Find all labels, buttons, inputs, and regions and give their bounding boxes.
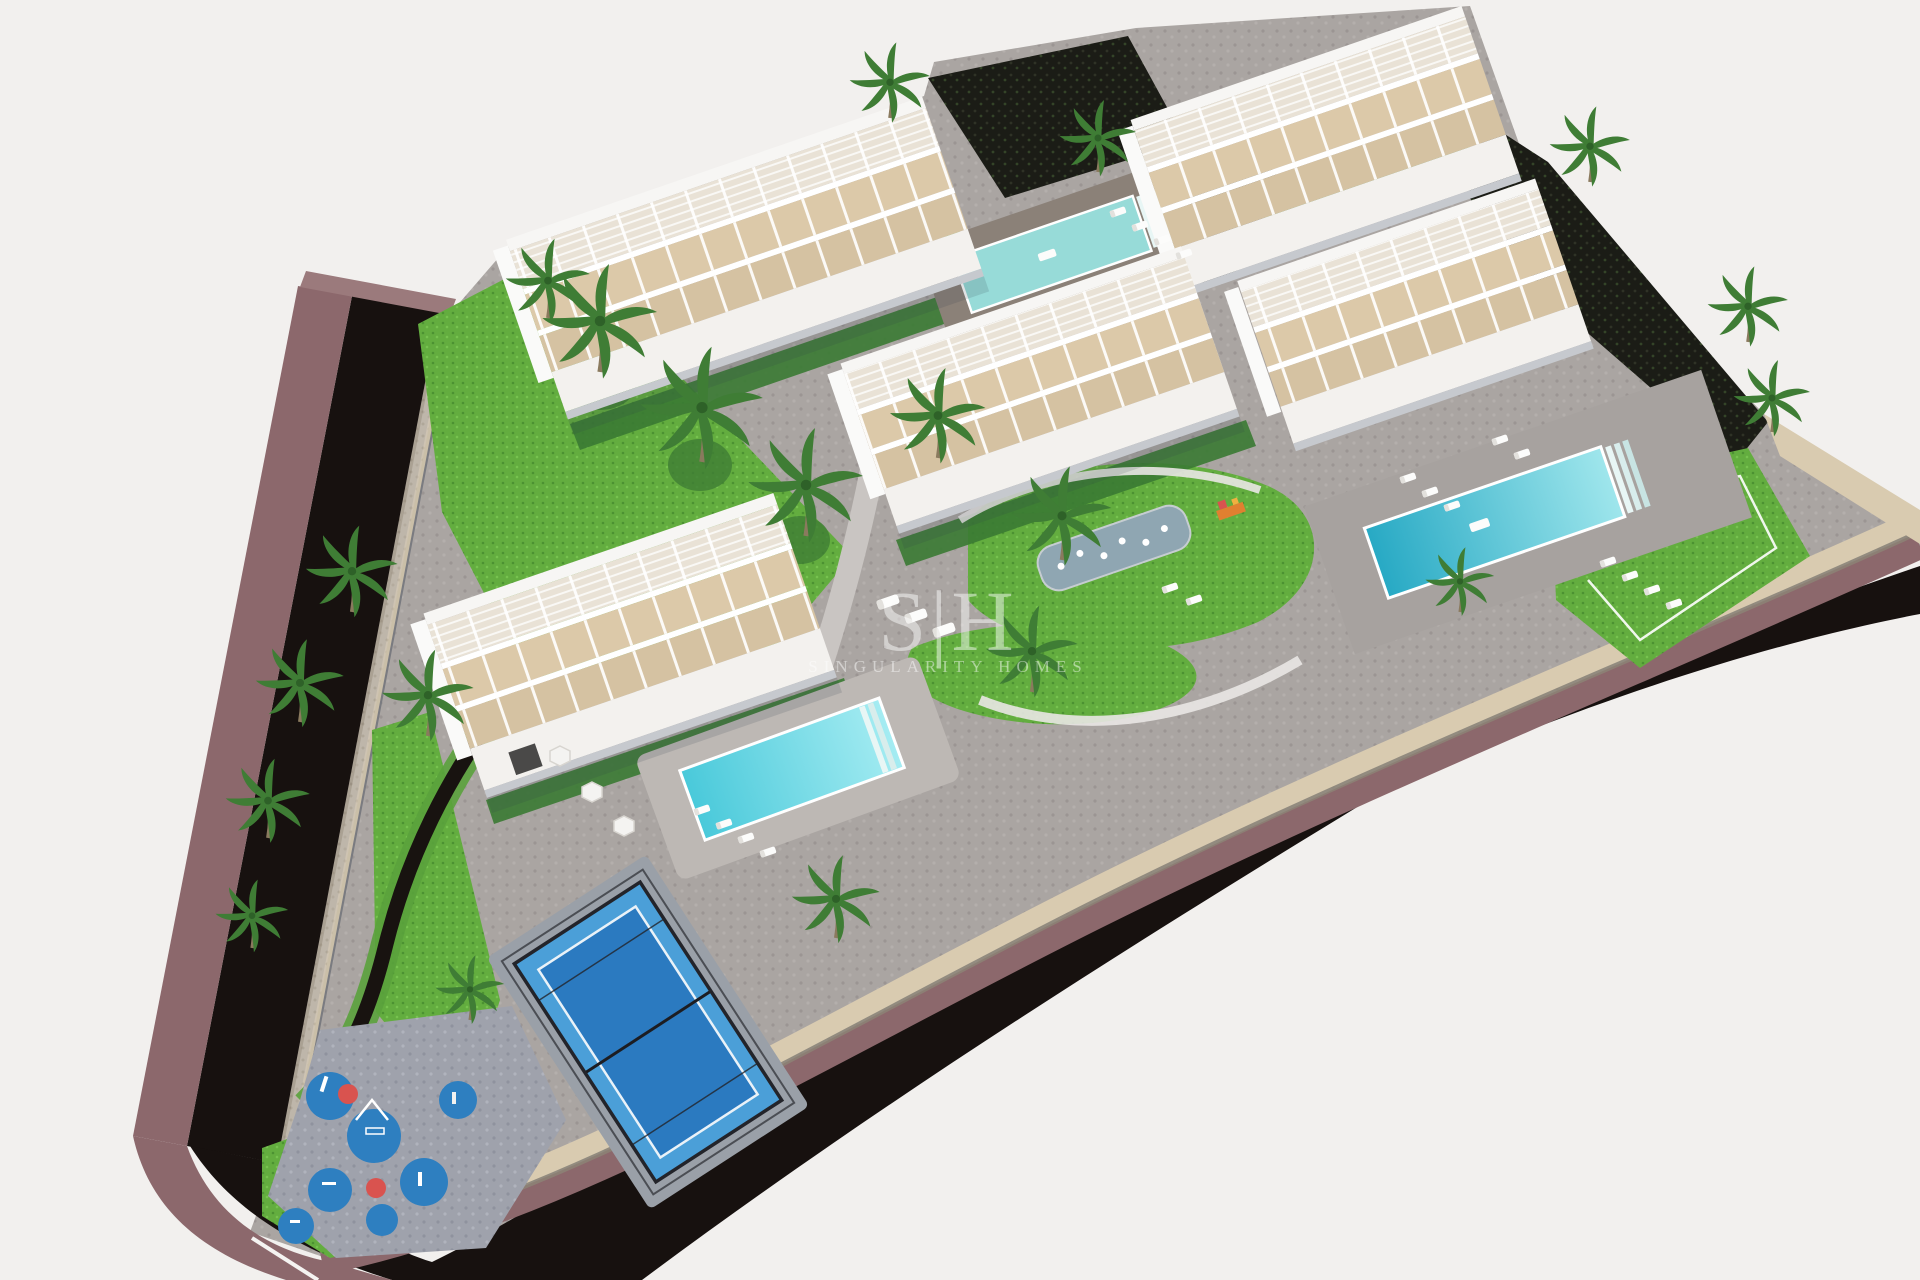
watermark-brand: SINGULARITY HOMES: [808, 657, 1087, 676]
seesaw: [322, 1182, 336, 1185]
planter: [614, 816, 634, 836]
play-equipment: [452, 1092, 456, 1104]
play-equipment: [418, 1172, 422, 1186]
aerial-render-canvas: Aerial 3D render of a new-build resident…: [0, 0, 1920, 1280]
play-pad: [347, 1109, 401, 1163]
play-equipment: [290, 1220, 300, 1223]
play-pad: [366, 1204, 398, 1236]
play-pad: [439, 1081, 477, 1119]
watermark-logo: S|H: [878, 573, 1017, 669]
shrub-cluster: [668, 439, 732, 491]
play-pad-accent: [366, 1178, 386, 1198]
play-pad: [278, 1208, 314, 1244]
play-pad: [308, 1168, 352, 1212]
play-pad: [400, 1158, 448, 1206]
render-image: Aerial 3D render of a new-build resident…: [0, 0, 1920, 1280]
planter: [582, 782, 602, 802]
play-pad-accent: [338, 1084, 358, 1104]
planter: [550, 746, 570, 766]
